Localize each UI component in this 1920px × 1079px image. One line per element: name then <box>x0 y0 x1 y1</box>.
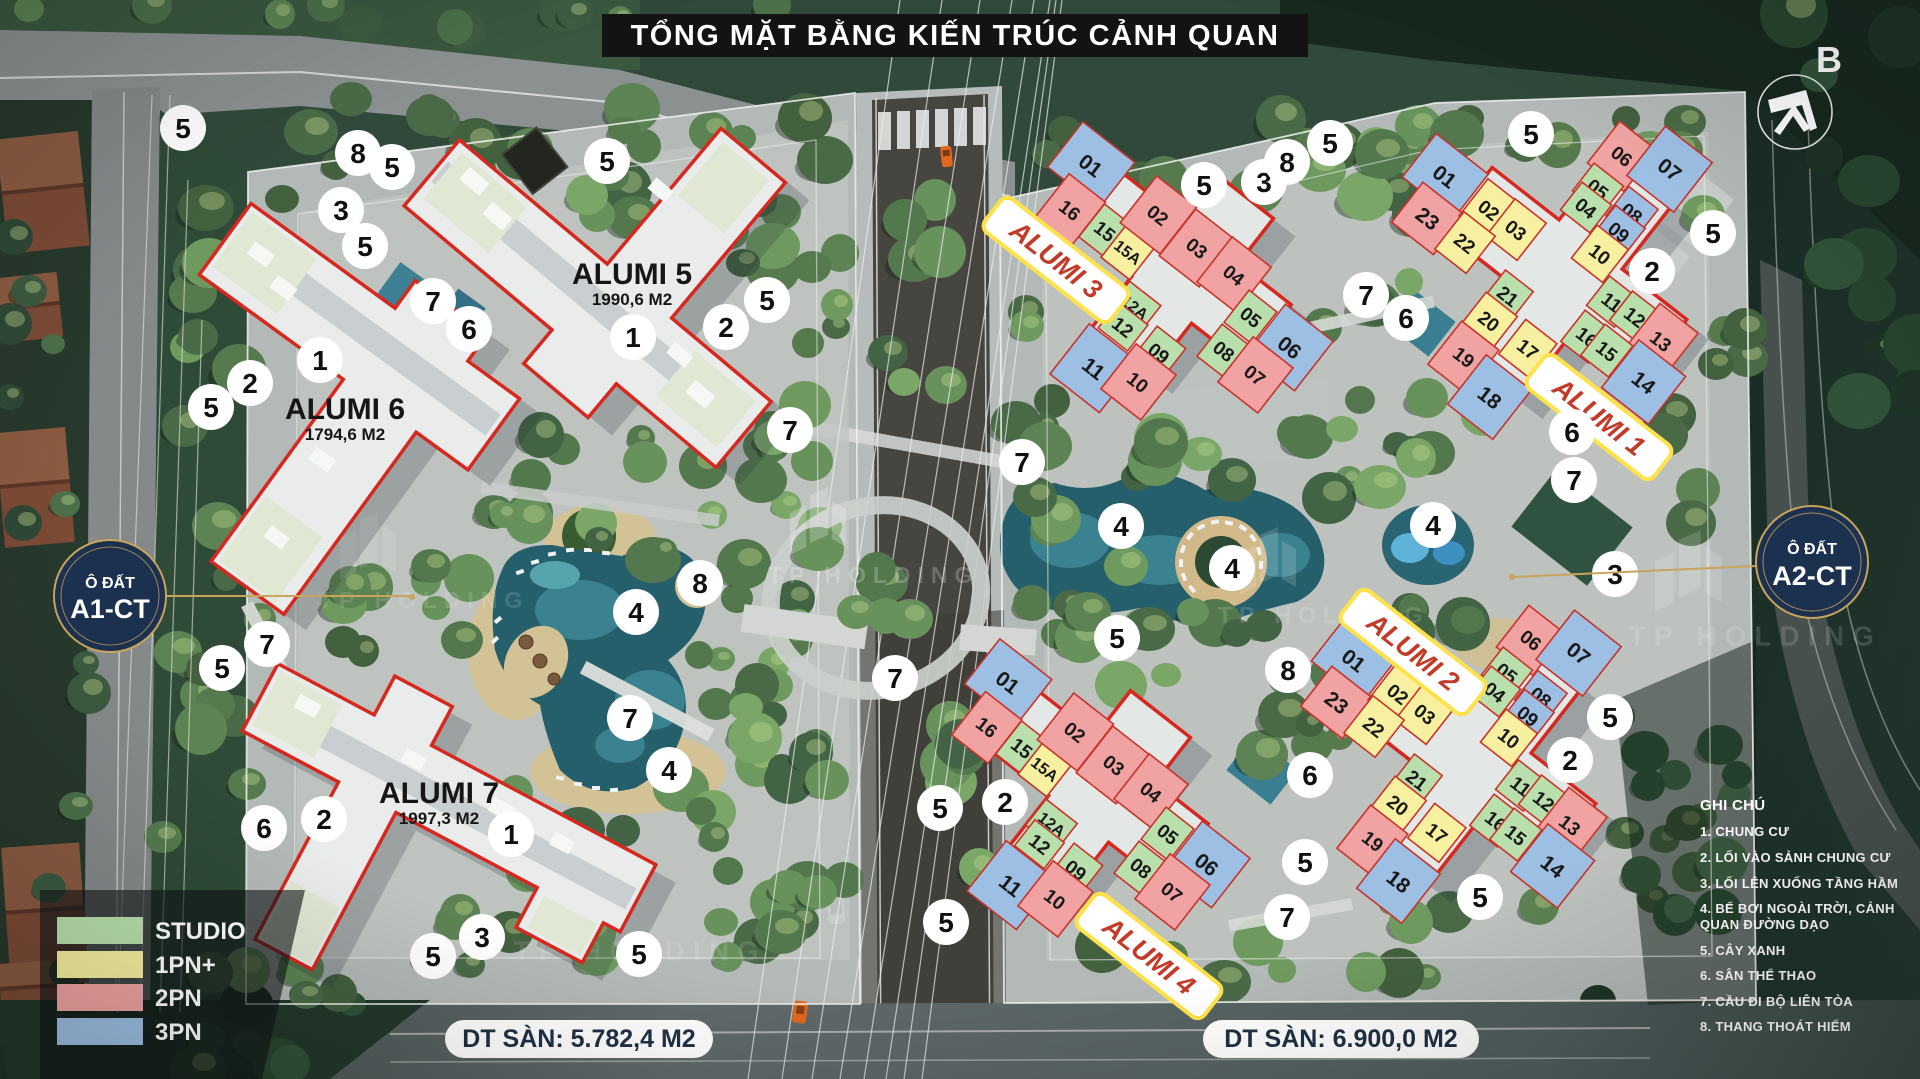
svg-text:2: 2 <box>242 368 258 399</box>
svg-text:5: 5 <box>425 941 441 972</box>
svg-text:3: 3 <box>474 922 490 953</box>
svg-text:7. CẦU ĐI BỘ LIÊN TÒA: 7. CẦU ĐI BỘ LIÊN TÒA <box>1700 994 1853 1009</box>
svg-text:5: 5 <box>938 907 954 938</box>
svg-text:7: 7 <box>782 415 798 446</box>
svg-text:TP HOLDING: TP HOLDING <box>1629 621 1883 652</box>
svg-text:B: B <box>1816 39 1842 80</box>
svg-text:2. LỐI VÀO SẢNH CHUNG CƯ: 2. LỐI VÀO SẢNH CHUNG CƯ <box>1700 850 1891 865</box>
svg-text:TP HOLDING: TP HOLDING <box>768 562 979 588</box>
svg-text:5: 5 <box>1196 170 1212 201</box>
svg-text:7: 7 <box>1358 280 1374 311</box>
svg-text:1794,6 M2: 1794,6 M2 <box>305 425 385 444</box>
svg-text:5: 5 <box>599 146 615 177</box>
svg-text:DT SÀN: 5.782,4 M2: DT SÀN: 5.782,4 M2 <box>462 1024 695 1053</box>
svg-text:1PN+: 1PN+ <box>155 952 216 979</box>
svg-text:5: 5 <box>1602 702 1618 733</box>
svg-text:A2-CT: A2-CT <box>1772 561 1852 591</box>
svg-text:ALUMI 7: ALUMI 7 <box>379 777 499 810</box>
svg-text:GHI CHÚ: GHI CHÚ <box>1700 796 1765 814</box>
svg-text:8. THANG THOÁT HIỂM: 8. THANG THOÁT HIỂM <box>1700 1019 1851 1034</box>
svg-text:6: 6 <box>1398 303 1414 334</box>
svg-text:7: 7 <box>1566 465 1582 496</box>
svg-text:8: 8 <box>1280 655 1296 686</box>
svg-text:2: 2 <box>997 787 1013 818</box>
svg-text:4: 4 <box>1425 510 1441 541</box>
svg-text:7: 7 <box>1279 902 1295 933</box>
svg-text:5: 5 <box>175 113 191 144</box>
svg-text:1. CHUNG CƯ: 1. CHUNG CƯ <box>1700 824 1789 839</box>
svg-text:6. SÂN THỂ THAO: 6. SÂN THỂ THAO <box>1700 968 1816 983</box>
svg-text:ALUMI 5: ALUMI 5 <box>572 258 692 291</box>
svg-text:1: 1 <box>625 322 641 353</box>
svg-text:3: 3 <box>1607 559 1623 590</box>
svg-text:DT SÀN: 6.900,0 M2: DT SÀN: 6.900,0 M2 <box>1224 1024 1457 1053</box>
svg-text:5: 5 <box>1109 623 1125 654</box>
svg-text:5: 5 <box>1472 882 1488 913</box>
svg-text:2: 2 <box>1644 256 1660 287</box>
svg-text:5: 5 <box>1297 847 1313 878</box>
svg-text:5: 5 <box>1705 218 1721 249</box>
svg-text:7: 7 <box>622 703 638 734</box>
svg-text:5. CÂY XANH: 5. CÂY XANH <box>1700 943 1785 958</box>
svg-text:5: 5 <box>759 285 775 316</box>
svg-text:5: 5 <box>214 653 230 684</box>
svg-text:4: 4 <box>1224 553 1240 584</box>
svg-text:1997,3 M2: 1997,3 M2 <box>399 809 479 828</box>
svg-text:1990,6 M2: 1990,6 M2 <box>592 290 672 309</box>
svg-text:7: 7 <box>1014 447 1030 478</box>
svg-text:5: 5 <box>384 152 400 183</box>
svg-text:1: 1 <box>312 345 328 376</box>
svg-text:4: 4 <box>661 755 677 786</box>
svg-text:6: 6 <box>1564 417 1580 448</box>
svg-text:2: 2 <box>1562 745 1578 776</box>
svg-text:6: 6 <box>1302 760 1318 791</box>
svg-text:4. BỂ BƠI NGOÀI TRỜI, CẢNH: 4. BỂ BƠI NGOÀI TRỜI, CẢNH <box>1700 901 1895 916</box>
svg-text:5: 5 <box>1523 119 1539 150</box>
svg-text:3. LỐI LÊN XUỐNG TẦNG HẦM: 3. LỐI LÊN XUỐNG TẦNG HẦM <box>1700 876 1898 891</box>
svg-text:4: 4 <box>1113 511 1129 542</box>
svg-text:5: 5 <box>631 939 647 970</box>
svg-text:Ô ĐẤT: Ô ĐẤT <box>1787 539 1837 558</box>
svg-text:2: 2 <box>316 804 332 835</box>
svg-text:QUAN ĐƯỜNG DẠO: QUAN ĐƯỜNG DẠO <box>1700 917 1829 932</box>
svg-text:2: 2 <box>718 312 734 343</box>
svg-text:TỔNG MẶT BẰNG KIẾN TRÚC CẢNH Q: TỔNG MẶT BẰNG KIẾN TRÚC CẢNH QUAN <box>631 18 1280 52</box>
svg-text:7: 7 <box>259 629 275 660</box>
svg-text:Ô ĐẤT: Ô ĐẤT <box>85 573 135 592</box>
svg-text:6: 6 <box>256 813 272 844</box>
svg-text:3: 3 <box>333 195 349 226</box>
svg-text:ALUMI 6: ALUMI 6 <box>285 393 405 426</box>
svg-text:1: 1 <box>503 819 519 850</box>
svg-text:5: 5 <box>357 231 373 262</box>
svg-text:7: 7 <box>425 286 441 317</box>
svg-text:8: 8 <box>350 138 366 169</box>
svg-text:3PN: 3PN <box>155 1019 202 1046</box>
svg-text:5: 5 <box>203 392 219 423</box>
svg-text:2PN: 2PN <box>155 985 202 1012</box>
svg-text:7: 7 <box>887 663 903 694</box>
svg-text:6: 6 <box>461 314 477 345</box>
svg-text:A1-CT: A1-CT <box>70 594 150 624</box>
svg-text:4: 4 <box>628 597 644 628</box>
svg-text:TP HOLDING: TP HOLDING <box>318 587 529 613</box>
svg-text:8: 8 <box>1279 147 1295 178</box>
svg-text:5: 5 <box>1322 128 1338 159</box>
svg-text:5: 5 <box>932 793 948 824</box>
svg-text:STUDIO: STUDIO <box>155 918 246 945</box>
svg-text:8: 8 <box>692 568 708 599</box>
